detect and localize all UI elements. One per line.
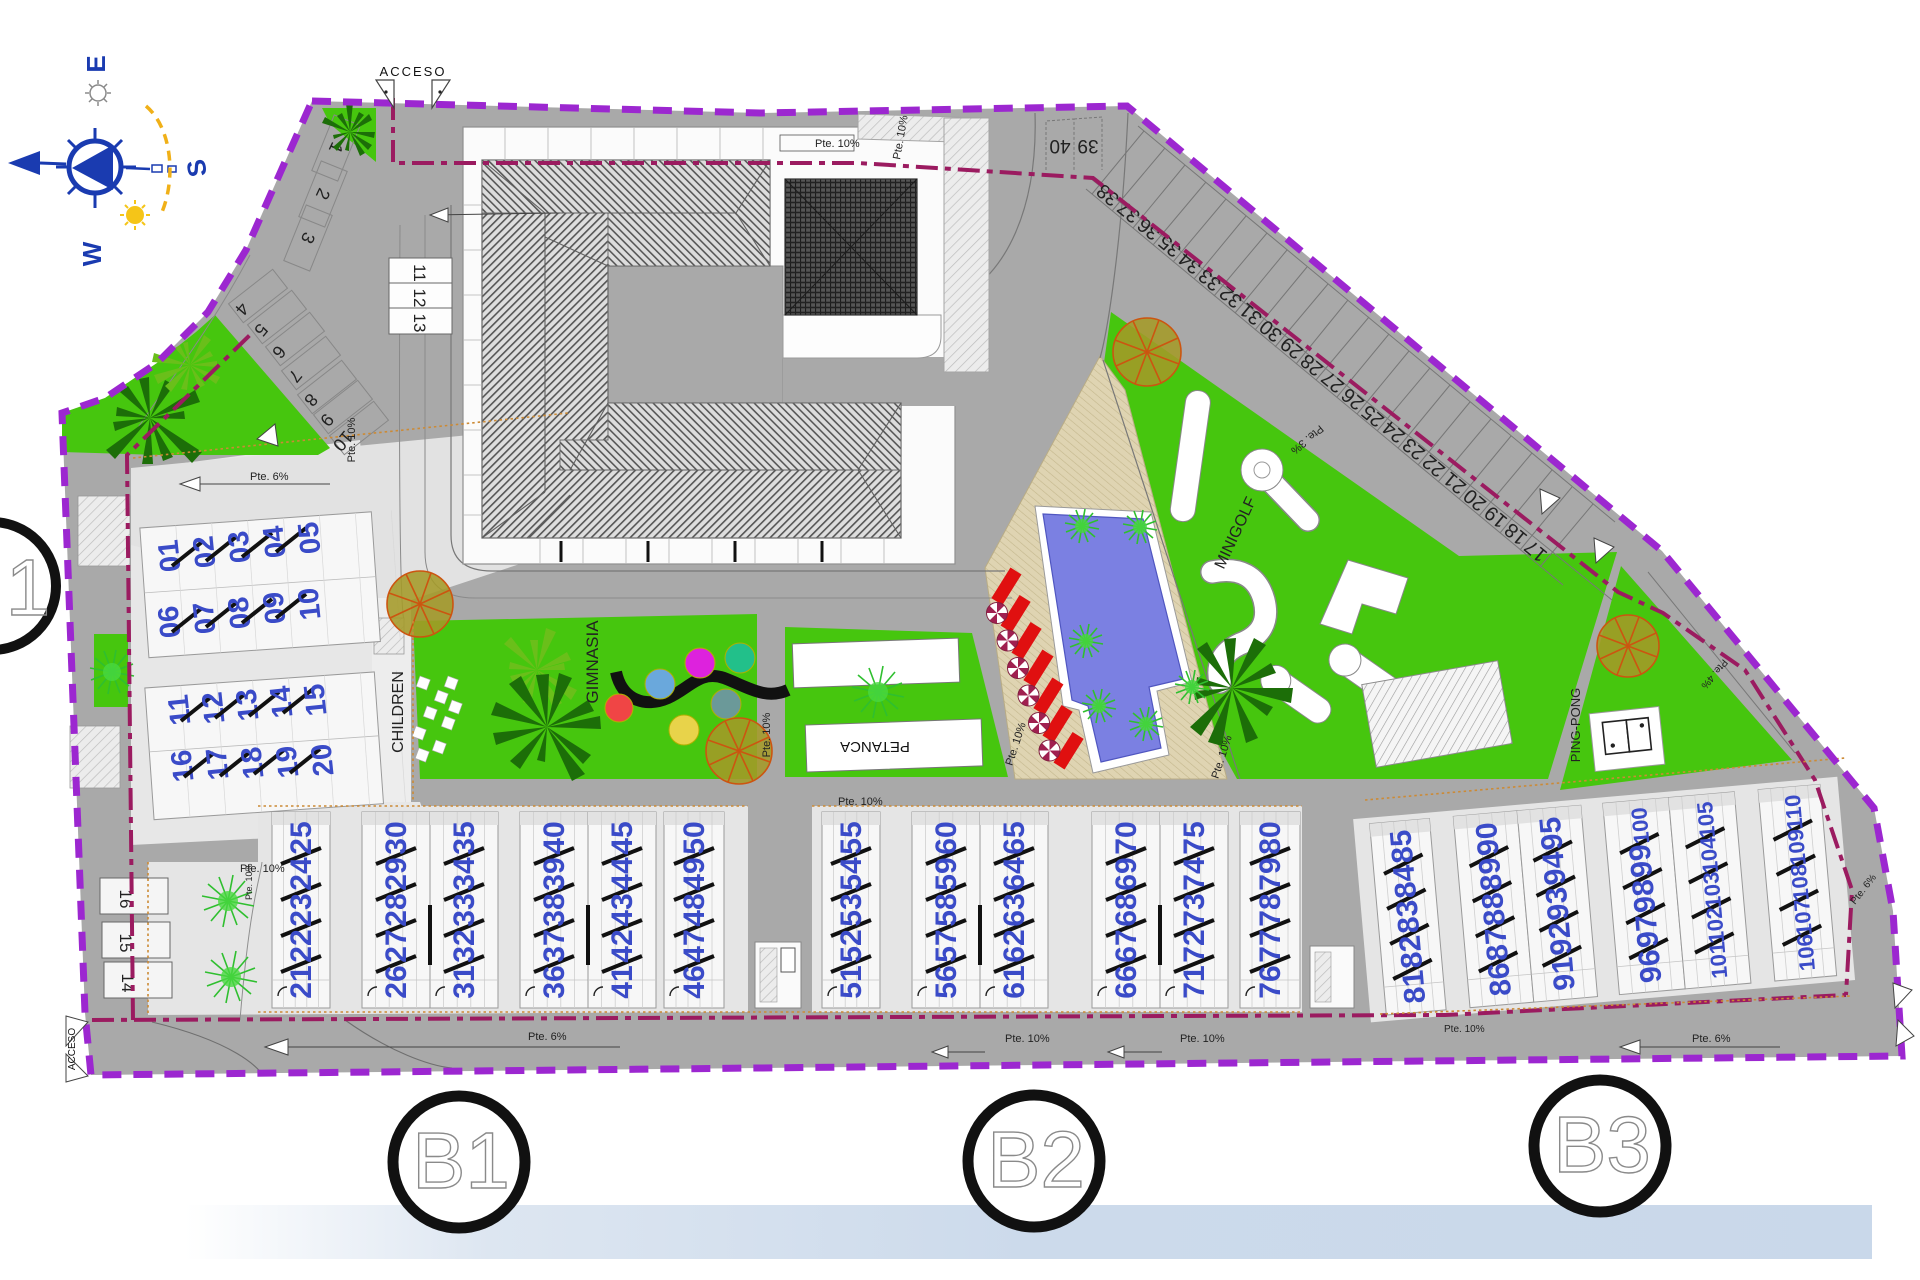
svg-text:28: 28: [380, 893, 413, 926]
svg-text:Pte. 10%: Pte. 10%: [838, 796, 883, 808]
svg-text:78: 78: [1254, 893, 1287, 926]
svg-text:41: 41: [606, 965, 639, 998]
svg-text:71: 71: [1178, 965, 1211, 998]
svg-text:75: 75: [1178, 821, 1211, 854]
svg-text:Pte. 6%: Pte. 6%: [1692, 1033, 1731, 1045]
svg-text:70: 70: [1110, 821, 1143, 854]
svg-text:106: 106: [1792, 933, 1820, 972]
svg-text:60: 60: [930, 821, 963, 854]
svg-text:32: 32: [448, 929, 481, 962]
svg-text:76: 76: [1254, 965, 1287, 998]
svg-text:39: 39: [1077, 135, 1098, 156]
svg-text:67: 67: [1110, 929, 1143, 962]
svg-text:30: 30: [380, 821, 413, 854]
svg-text:05: 05: [292, 520, 327, 555]
svg-text:55: 55: [835, 821, 868, 854]
svg-text:64: 64: [998, 857, 1031, 891]
svg-text:40: 40: [538, 821, 571, 854]
svg-text:E: E: [81, 55, 111, 72]
svg-text:38: 38: [538, 893, 571, 926]
svg-text:42: 42: [606, 929, 639, 962]
svg-text:11: 11: [410, 264, 429, 282]
svg-text:102: 102: [1701, 906, 1729, 945]
svg-text:95: 95: [1534, 815, 1570, 851]
svg-text:100: 100: [1626, 806, 1654, 845]
svg-text:50: 50: [678, 821, 711, 854]
svg-text:Pte. 10%: Pte. 10%: [1444, 1024, 1485, 1035]
svg-text:63: 63: [998, 893, 1031, 926]
svg-text:53: 53: [835, 893, 868, 926]
svg-text:87: 87: [1479, 926, 1515, 962]
svg-text:35: 35: [448, 821, 481, 854]
svg-text:58: 58: [930, 893, 963, 926]
svg-text:90: 90: [1470, 821, 1506, 857]
svg-text:Pte. 6%: Pte. 6%: [528, 1031, 567, 1043]
svg-text:B2: B2: [987, 1115, 1085, 1204]
svg-text:49: 49: [678, 857, 711, 890]
svg-text:68: 68: [1110, 893, 1143, 926]
svg-text:CHILDREN: CHILDREN: [390, 671, 407, 753]
svg-text:98: 98: [1627, 878, 1663, 914]
svg-text:Pte. 10%: Pte. 10%: [815, 138, 860, 150]
svg-text:105: 105: [1692, 801, 1720, 840]
svg-text:91: 91: [1546, 956, 1582, 992]
svg-text:72: 72: [1178, 929, 1211, 962]
svg-text:1: 1: [6, 543, 51, 632]
svg-text:36: 36: [538, 965, 571, 998]
svg-text:104: 104: [1695, 835, 1723, 875]
svg-text:92: 92: [1543, 921, 1579, 957]
svg-text:93: 93: [1540, 886, 1576, 922]
svg-text:37: 37: [538, 929, 571, 962]
svg-text:45: 45: [606, 821, 639, 854]
svg-text:27: 27: [380, 929, 413, 962]
svg-text:52: 52: [835, 929, 868, 962]
svg-text:31: 31: [448, 965, 481, 998]
svg-text:79: 79: [1254, 857, 1287, 890]
svg-text:65: 65: [998, 821, 1031, 854]
svg-text:74: 74: [1178, 857, 1211, 891]
svg-text:62: 62: [998, 929, 1031, 962]
svg-text:Pte. 10%: Pte. 10%: [1180, 1033, 1225, 1045]
svg-text:GIMNASIA: GIMNASIA: [583, 620, 602, 704]
svg-text:103: 103: [1698, 871, 1726, 910]
svg-text:29: 29: [380, 857, 413, 890]
svg-text:PETANCA: PETANCA: [840, 738, 910, 755]
svg-text:12: 12: [410, 289, 429, 308]
svg-text:73: 73: [1178, 893, 1211, 926]
svg-text:88: 88: [1476, 891, 1512, 927]
svg-text:82: 82: [1394, 934, 1430, 970]
svg-text:10: 10: [292, 586, 327, 621]
svg-text:66: 66: [1110, 965, 1143, 998]
svg-text:69: 69: [1110, 857, 1143, 890]
svg-text:ACCESO: ACCESO: [380, 64, 447, 79]
svg-text:54: 54: [835, 857, 868, 891]
svg-text:13: 13: [410, 314, 429, 333]
svg-text:Pte. 10%: Pte. 10%: [1005, 1033, 1050, 1045]
svg-text:56: 56: [930, 965, 963, 998]
svg-text:110: 110: [1780, 794, 1808, 832]
svg-text:15: 15: [298, 682, 333, 717]
svg-text:24: 24: [285, 857, 318, 891]
svg-text:108: 108: [1786, 863, 1814, 902]
svg-text:W: W: [77, 241, 107, 266]
svg-text:B3: B3: [1553, 1100, 1651, 1189]
svg-text:26: 26: [380, 965, 413, 998]
svg-text:57: 57: [930, 929, 963, 962]
svg-text:97: 97: [1630, 913, 1666, 949]
svg-text:80: 80: [1254, 821, 1287, 854]
svg-text:77: 77: [1254, 929, 1287, 962]
svg-text:109: 109: [1783, 828, 1811, 867]
svg-text:84: 84: [1387, 863, 1423, 899]
svg-text:33: 33: [448, 893, 481, 926]
svg-text:Pte. 6%: Pte. 6%: [250, 471, 289, 483]
svg-text:99: 99: [1623, 843, 1659, 879]
svg-text:19: 19: [270, 744, 305, 779]
svg-text:48: 48: [678, 893, 711, 926]
svg-text:15: 15: [116, 934, 135, 953]
svg-text:Pte. 10%: Pte. 10%: [346, 417, 358, 462]
svg-text:81: 81: [1397, 969, 1433, 1005]
svg-text:94: 94: [1537, 850, 1573, 886]
svg-text:ACCESO: ACCESO: [67, 1028, 78, 1070]
svg-text:B1: B1: [412, 1116, 510, 1205]
svg-text:PING-PONG: PING-PONG: [1568, 688, 1583, 762]
svg-text:47: 47: [678, 929, 711, 962]
svg-text:25: 25: [285, 821, 318, 854]
svg-text:Pte. 10%: Pte. 10%: [244, 863, 254, 900]
svg-text:23: 23: [285, 893, 318, 926]
svg-text:101: 101: [1704, 941, 1732, 980]
svg-text:83: 83: [1390, 899, 1426, 935]
svg-text:40: 40: [1049, 135, 1070, 156]
svg-text:43: 43: [606, 893, 639, 926]
svg-text:61: 61: [998, 965, 1031, 998]
svg-text:59: 59: [930, 857, 963, 890]
svg-text:34: 34: [448, 857, 481, 891]
svg-text:107: 107: [1789, 898, 1817, 937]
svg-text:46: 46: [678, 965, 711, 998]
svg-text:17: 17: [200, 746, 235, 781]
svg-text:86: 86: [1482, 961, 1518, 997]
svg-text:Pte. 10%: Pte. 10%: [761, 712, 773, 757]
svg-text:44: 44: [606, 857, 639, 891]
svg-text:85: 85: [1384, 829, 1420, 865]
svg-text:96: 96: [1633, 948, 1669, 984]
svg-text:20: 20: [305, 742, 340, 777]
svg-text:22: 22: [285, 929, 318, 962]
svg-text:89: 89: [1473, 856, 1509, 892]
svg-text:39: 39: [538, 857, 571, 890]
svg-text:51: 51: [835, 965, 868, 998]
svg-text:21: 21: [285, 965, 318, 998]
